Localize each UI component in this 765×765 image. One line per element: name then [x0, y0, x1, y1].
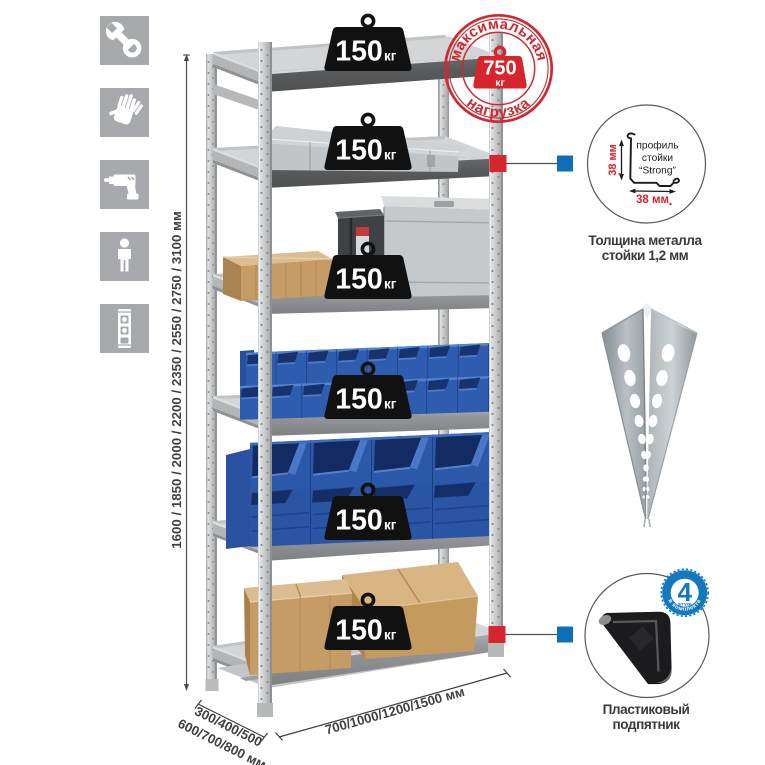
- svg-text:38 мм: 38 мм: [636, 194, 669, 206]
- svg-text:подпятник: подпятник: [612, 717, 680, 732]
- svg-text:кг: кг: [384, 518, 397, 533]
- svg-text:кг: кг: [384, 148, 397, 163]
- svg-text:профиль: профиль: [636, 140, 678, 152]
- svg-text:150: 150: [335, 384, 383, 416]
- svg-text:150: 150: [335, 264, 383, 296]
- svg-text:Пластиковый: Пластиковый: [603, 702, 690, 717]
- svg-text:Толщина металла: Толщина металла: [588, 233, 702, 248]
- svg-text:кг: кг: [384, 49, 397, 64]
- svg-text:кг: кг: [384, 397, 397, 412]
- svg-text:150: 150: [335, 505, 383, 537]
- svg-text:кг: кг: [495, 77, 505, 89]
- svg-text:1600 / 1850 / 2000 / 2200 / 23: 1600 / 1850 / 2000 / 2200 / 2350 / 2550 …: [169, 211, 184, 549]
- svg-text:“Strong”: “Strong”: [639, 166, 676, 177]
- svg-text:стойки: стойки: [642, 153, 673, 164]
- svg-text:150: 150: [335, 135, 383, 167]
- svg-text:стойки 1,2 мм: стойки 1,2 мм: [602, 248, 689, 263]
- svg-text:38 мм: 38 мм: [607, 144, 619, 176]
- svg-text:150: 150: [335, 615, 383, 647]
- svg-text:кг: кг: [384, 628, 397, 643]
- svg-text:штуки: штуки: [678, 601, 692, 606]
- svg-text:кг: кг: [384, 277, 397, 292]
- svg-text:150: 150: [335, 36, 383, 68]
